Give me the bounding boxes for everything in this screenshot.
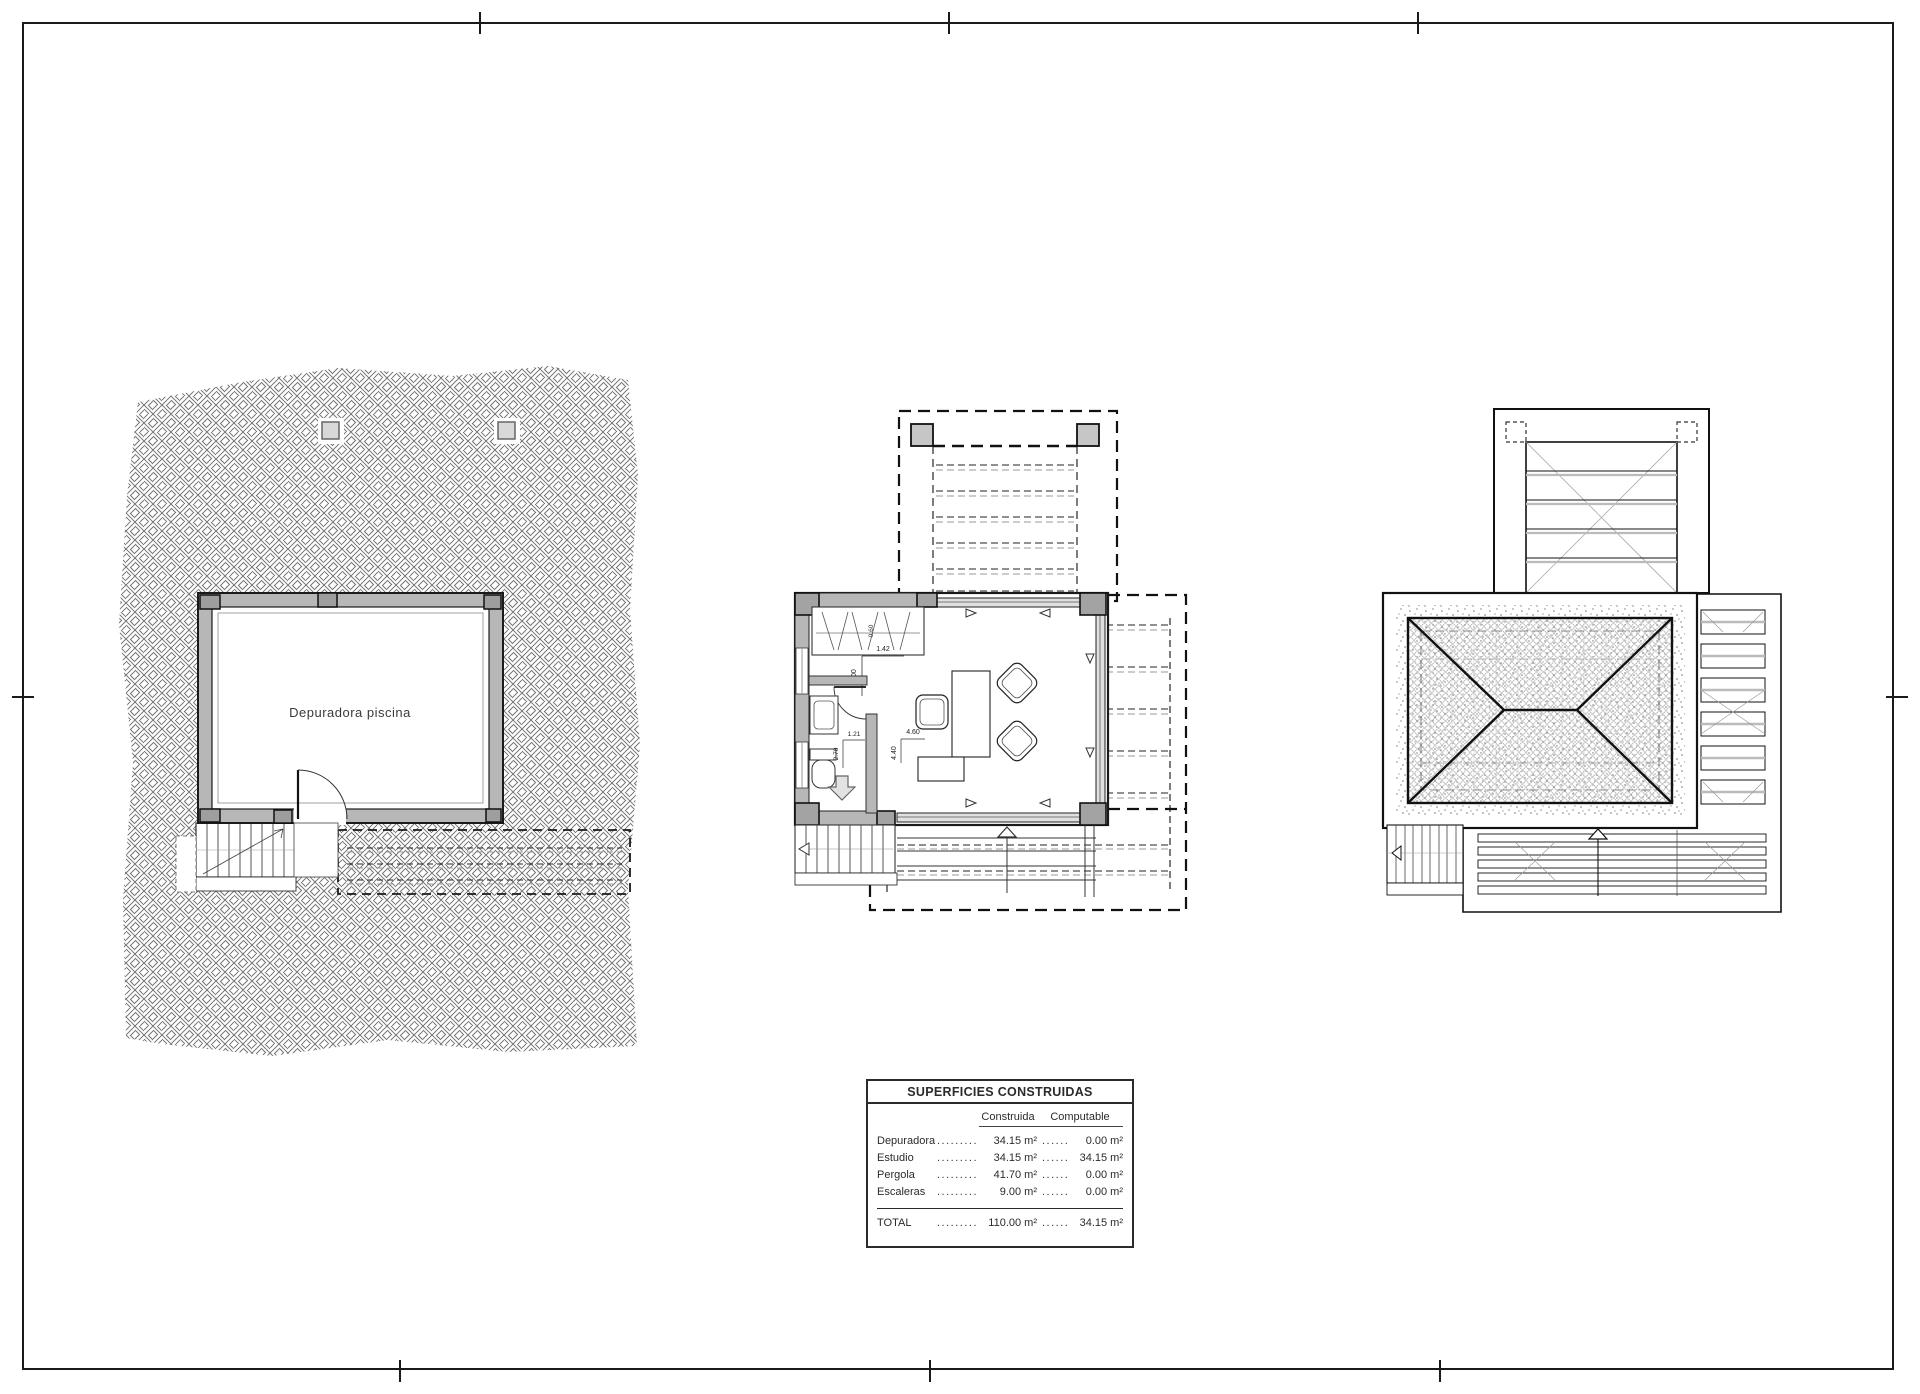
roof-main <box>1383 593 1697 828</box>
dim-wardrobe-depth: 0.60 <box>868 624 875 637</box>
roof-stairs <box>1387 825 1463 895</box>
closet: 0.60 <box>812 607 924 655</box>
roof-plan <box>1375 400 1795 980</box>
table-row: Estudio ........................ 34.15 m… <box>877 1150 1123 1167</box>
drawing-sheet: Depuradora piscina <box>0 0 1920 1394</box>
table-total-row: TOTAL ........................ 110.00 m²… <box>877 1208 1123 1234</box>
areas-table-title: SUPERFICIES CONSTRUIDAS <box>868 1081 1132 1104</box>
toilet-bowl <box>812 760 835 788</box>
border-tick <box>479 12 481 34</box>
table-row: Depuradora ........................ 34.1… <box>877 1133 1123 1150</box>
areas-table-header: Construida Computable <box>877 1110 1123 1129</box>
roof-pergola-top <box>1494 409 1709 593</box>
table-row: Pergola ........................ 41.70 m… <box>877 1167 1123 1184</box>
dim-closet-width: 1.42 <box>876 646 890 653</box>
table-row: Escaleras ........................ 9.00 … <box>877 1184 1123 1201</box>
studio-plan: 0.60 1.42 1.00 1.21 2.70 4 <box>640 400 1210 980</box>
desk <box>952 671 990 757</box>
border-tick <box>1439 1360 1441 1382</box>
dim-bath-width: 1.21 <box>848 731 861 738</box>
right-window <box>1096 607 1105 807</box>
dim-room-width: 4.60 <box>906 729 920 736</box>
bottom-window <box>897 813 1080 822</box>
room-label: Depuradora piscina <box>289 705 411 720</box>
office-chair <box>916 695 948 729</box>
door-recess <box>294 823 338 877</box>
border-tick <box>1417 12 1419 34</box>
entry-deck <box>795 825 1096 897</box>
areas-table: SUPERFICIES CONSTRUIDAS Construida Compu… <box>866 1079 1134 1248</box>
roof-pergola-bottom <box>1478 829 1766 896</box>
border-tick <box>12 696 34 698</box>
border-tick <box>399 1360 401 1382</box>
border-tick <box>929 1360 931 1382</box>
col-construida: Construida <box>979 1110 1037 1127</box>
entry-arrow-icon <box>998 827 1016 837</box>
col-computable: Computable <box>1037 1110 1123 1127</box>
door-opening <box>294 806 346 825</box>
dim-room-depth: 4.40 <box>891 746 898 760</box>
basement-plan: Depuradora piscina <box>85 350 650 1065</box>
border-tick <box>1886 696 1908 698</box>
desk-return <box>918 757 964 781</box>
border-tick <box>948 12 950 34</box>
pergola-top <box>899 411 1117 601</box>
dim-bath-length: 2.70 <box>833 747 840 760</box>
